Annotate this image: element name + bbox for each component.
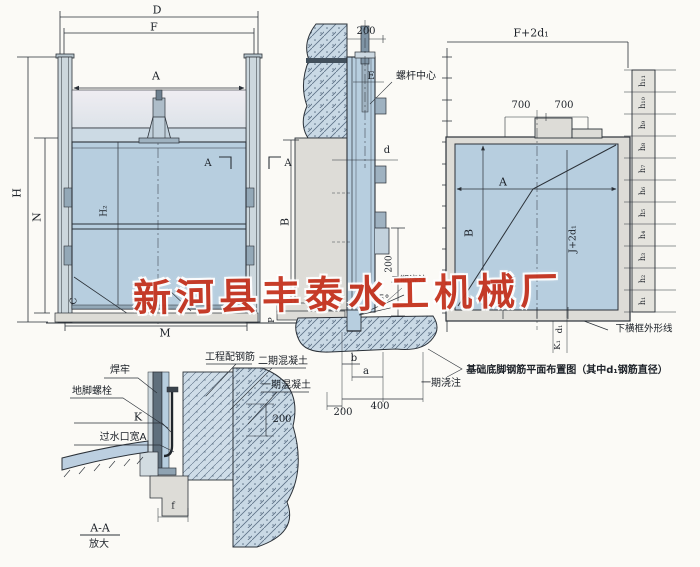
dim-label-A: A	[152, 71, 160, 82]
stage1-pour-leader	[428, 349, 462, 377]
h-spacing-label: h₇	[639, 165, 647, 173]
dim-label-400: 400	[370, 402, 389, 412]
dim-label-D: D	[153, 5, 162, 16]
plan-view-caption: 基础底脚钢筋平面布置图（其中d₁钢筋直径）	[466, 366, 668, 376]
dim-label-700-right: 700	[554, 101, 573, 111]
breast-wall-concrete	[303, 24, 347, 138]
flow-surface	[62, 441, 148, 470]
side-wedge	[64, 246, 72, 265]
sill-lip	[140, 452, 158, 476]
dim-label-F2d1: F+2d₁	[513, 28, 548, 39]
dim-label-f: f	[171, 503, 174, 512]
h-spacing-label: h₅	[639, 209, 647, 217]
stage1-concrete-label: 一期混凝土	[261, 381, 311, 391]
dim-label-K1: K₁	[554, 340, 563, 350]
dim-label-J2d1: J+2d₁	[568, 225, 578, 253]
weld-label: 焊牢	[110, 366, 130, 376]
bolt-nut	[167, 387, 178, 392]
dim-label-b: b	[351, 354, 357, 364]
h-spacing-label: h₄	[639, 231, 647, 239]
lift-clevis	[153, 98, 165, 118]
hoist-base-plate	[139, 138, 179, 143]
dim-label-C: C	[71, 298, 80, 305]
engineering-drawing-sheet: D F A H N H₂ C M P A A 200 E 螺杆中心 d B 20…	[0, 0, 700, 567]
stage2-concrete-label: 二期混凝土	[258, 357, 308, 367]
dim-label-B-side: B	[280, 218, 291, 226]
top-notch	[535, 118, 572, 138]
h-spacing-label: h₁	[639, 297, 647, 305]
dim-label-F: F	[150, 22, 158, 33]
dim-label-700-left: 700	[511, 101, 530, 111]
side-wedge	[64, 188, 72, 207]
h-spacing-label: h₃	[639, 253, 647, 261]
h-spacing-label: h₉	[639, 121, 647, 129]
dim-label-a: a	[363, 367, 369, 377]
section-title: A-A	[90, 523, 110, 534]
dim-label-A-plan: A	[499, 177, 507, 188]
dim-label-d1: d₁	[556, 325, 565, 334]
dim-line-F	[64, 28, 254, 56]
section-subtitle: 放大	[89, 540, 109, 550]
side-wedge	[246, 188, 254, 207]
section-mark-letter-left: A	[204, 159, 211, 169]
rebar-label: 工程配钢筋	[205, 353, 255, 363]
roller-bracket	[375, 98, 386, 114]
roller-bracket	[375, 212, 386, 229]
bottom-frame-label: 下横框外形线	[615, 324, 672, 334]
dim-label-200-detail: 200	[272, 415, 291, 425]
dim-label-d: d	[384, 146, 390, 156]
dim-label-N: N	[32, 212, 43, 222]
dim-label-M: M	[159, 328, 170, 339]
stage1-pour-label: 一期浇注	[421, 379, 461, 389]
h-spacing-label: h₈	[639, 143, 647, 151]
dim-label-E: E	[367, 72, 374, 82]
screw-center-label: 螺杆中心	[396, 72, 436, 82]
factory-watermark-text: 新河县丰泰水工机械厂	[133, 260, 564, 322]
dim-label-200-bottom: 200	[333, 408, 352, 418]
anchor-pocket	[150, 476, 188, 516]
section-cut-mark-right	[269, 157, 281, 169]
h-spacing-label: h₆	[639, 187, 647, 195]
wall-joint-band	[306, 58, 347, 63]
anchor-bolt-label: 地脚螺栓	[72, 387, 112, 397]
screw-rod-tip	[156, 90, 162, 100]
dim-line-N	[34, 138, 58, 313]
h-spacing-label: h₁₁	[639, 75, 647, 87]
stage2-concrete-strip	[183, 372, 233, 480]
roller-bracket	[375, 166, 386, 183]
h-spacing-label: h₁₀	[639, 97, 647, 109]
step-bracket	[375, 228, 389, 254]
dim-label-B-plan: B	[464, 229, 475, 237]
dim-line-D	[60, 11, 258, 56]
foundation-concrete	[296, 316, 437, 352]
h-spacing-label: h₂	[639, 275, 647, 283]
dim-label-H: H	[12, 188, 23, 198]
dim-label-H2: H₂	[101, 205, 110, 216]
dim-label-200-top: 200	[356, 27, 375, 37]
dim-label-K: K	[134, 412, 142, 423]
top-notch-step	[572, 129, 602, 138]
water-opening-label: 过水口宽A	[100, 433, 147, 443]
section-mark-letter-right: A	[284, 159, 291, 169]
bottom-frame-leader	[584, 321, 608, 330]
stage1-concrete-mass	[233, 368, 298, 547]
side-wedge	[246, 246, 254, 265]
dim-line-F2d1	[447, 42, 628, 68]
